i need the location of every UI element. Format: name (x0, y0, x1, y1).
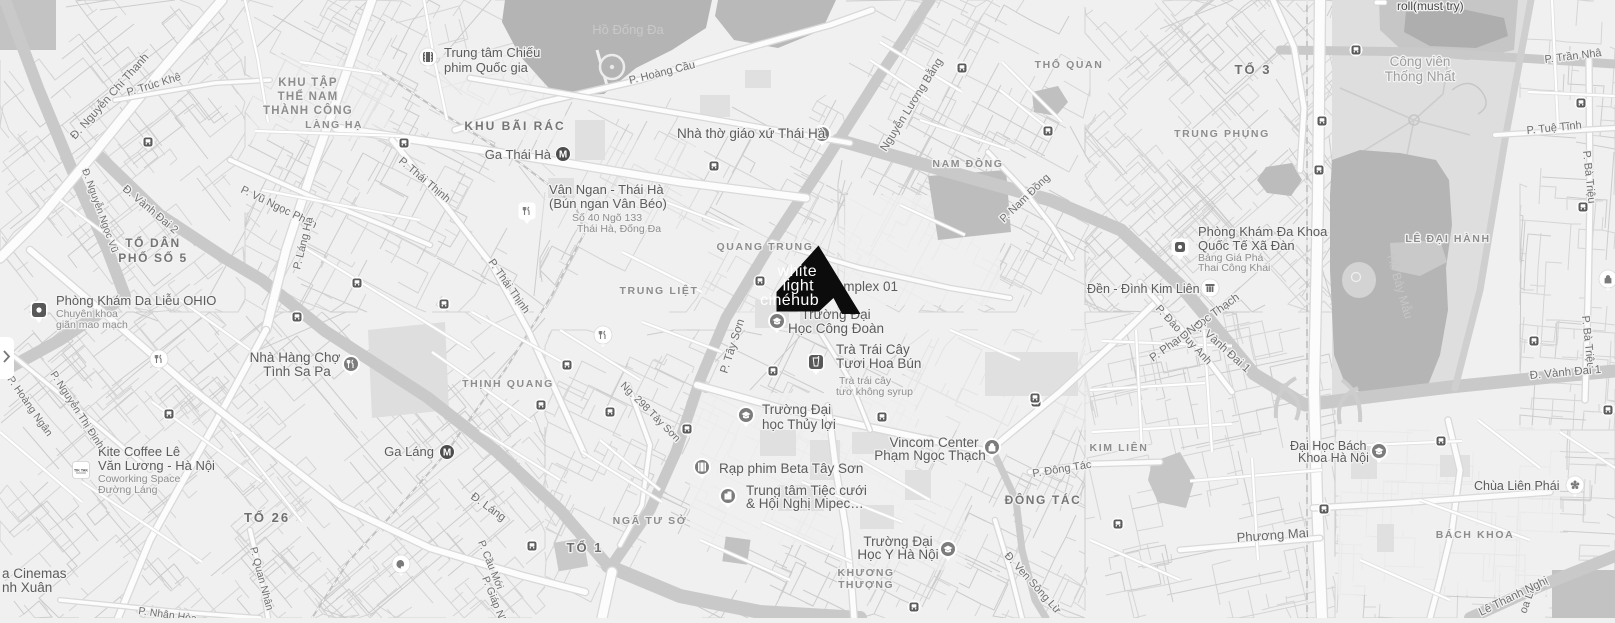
svg-text:LÊ ĐẠI HÀNH: LÊ ĐẠI HÀNH (1405, 232, 1490, 245)
svg-text:NGÃ TƯ SỞ: NGÃ TƯ SỞ (613, 514, 688, 527)
svg-text:roll(must try): roll(must try) (1397, 0, 1464, 13)
svg-text:Phạm Ngọc Thạch: Phạm Ngọc Thạch (874, 448, 986, 463)
svg-text:THÀNH CÔNG: THÀNH CÔNG (263, 104, 353, 117)
svg-text:nh Xuân: nh Xuân (2, 580, 52, 595)
svg-text:Nhà Hàng Chợ: Nhà Hàng Chợ (250, 350, 341, 365)
svg-text:M: M (559, 150, 567, 161)
svg-text:Thống Nhất: Thống Nhất (1385, 69, 1456, 84)
svg-text:Hồ Đống Đa: Hồ Đống Đa (592, 22, 664, 37)
svg-text:KHU TẬP: KHU TẬP (278, 76, 338, 89)
svg-text:Phòng Khám Da Liễu OHIO: Phòng Khám Da Liễu OHIO (56, 293, 216, 308)
svg-text:ĐÔNG TÁC: ĐÔNG TÁC (1005, 492, 1082, 507)
svg-text:TRUNG PHỤNG: TRUNG PHỤNG (1174, 128, 1270, 140)
svg-text:Tình Sa Pa: Tình Sa Pa (263, 364, 331, 379)
svg-text:cinéhub: cinéhub (760, 292, 819, 309)
svg-text:KIM LIÊN: KIM LIÊN (1090, 441, 1149, 454)
svg-text:Công viên: Công viên (1390, 54, 1451, 69)
svg-text:Chùa Liên Phái: Chùa Liên Phái (1474, 479, 1559, 493)
svg-text:QUANG TRUNG: QUANG TRUNG (717, 241, 814, 253)
svg-text:Đường Láng: Đường Láng (98, 484, 158, 496)
svg-text:KHƯƠNG: KHƯƠNG (838, 567, 895, 579)
svg-text:TRUNG LIỆT: TRUNG LIỆT (620, 284, 699, 297)
svg-text:TỔ 3: TỔ 3 (1235, 62, 1272, 77)
svg-text:M: M (443, 448, 451, 459)
svg-text:Ga Thái Hà: Ga Thái Hà (485, 147, 552, 162)
svg-text:LÀNG HẠ: LÀNG HẠ (305, 118, 363, 131)
svg-text:THỊNH QUANG: THỊNH QUANG (462, 378, 554, 390)
svg-text:THỔ QUAN: THỔ QUAN (1035, 58, 1104, 71)
svg-text:TIK TAK: TIK TAK (74, 469, 88, 473)
svg-text:giãn mao mạch: giãn mao mạch (56, 319, 128, 331)
svg-text:Tươi Hoa Bún: Tươi Hoa Bún (836, 356, 921, 371)
svg-text:Học Công Đoàn: Học Công Đoàn (788, 321, 884, 336)
svg-text:THƯỢNG: THƯỢNG (838, 579, 894, 591)
svg-text:Đền - Đình Kim Liên: Đền - Đình Kim Liên (1087, 282, 1200, 296)
svg-text:Trường Đại: Trường Đại (762, 402, 831, 417)
svg-text:tươ không syrup: tươ không syrup (836, 386, 913, 398)
svg-text:Khoa Hà Nội: Khoa Hà Nội (1298, 451, 1369, 465)
svg-text:a Cinemas: a Cinemas (2, 566, 67, 581)
svg-text:(Bún ngan Vân Béo): (Bún ngan Vân Béo) (549, 196, 667, 211)
svg-text:THỂ NAM: THỂ NAM (278, 90, 339, 103)
svg-text:TỔ 1: TỔ 1 (567, 540, 604, 555)
svg-text:Rạp phim Beta Tây Sơn: Rạp phim Beta Tây Sơn (719, 461, 863, 476)
svg-text:Vân Ngan - Thái Hà: Vân Ngan - Thái Hà (549, 182, 664, 197)
svg-text:KHU BÃI RÁC: KHU BÃI RÁC (464, 118, 565, 133)
svg-text:TỔ DÂN: TỔ DÂN (125, 235, 181, 250)
svg-text:phim Quốc gia: phim Quốc gia (444, 60, 529, 75)
svg-text:PHỐ SỐ 5: PHỐ SỐ 5 (118, 250, 187, 265)
svg-text:Thái Hà, Đống Đa: Thái Hà, Đống Đa (577, 223, 661, 235)
svg-text:Kite Coffee Lê: Kite Coffee Lê (98, 444, 180, 459)
svg-text:Văn Lương - Hà Nội: Văn Lương - Hà Nội (98, 458, 215, 473)
svg-text:& Hội Nghị Mipec…: & Hội Nghị Mipec… (746, 496, 864, 511)
svg-text:TỔ 26: TỔ 26 (244, 510, 290, 525)
svg-text:Quốc Tế Xã Đàn: Quốc Tế Xã Đàn (1198, 238, 1295, 253)
svg-text:Nhà thờ giáo xứ Thái Hà: Nhà thờ giáo xứ Thái Hà (677, 126, 826, 141)
svg-text:Trung tâm Chiếu: Trung tâm Chiếu (444, 45, 540, 60)
svg-text:Học Y Hà Nội: Học Y Hà Nội (857, 547, 938, 562)
svg-text:Ga Láng: Ga Láng (384, 444, 434, 459)
svg-text:Phòng Khám Đa Khoa: Phòng Khám Đa Khoa (1198, 224, 1328, 239)
svg-text:NAM ĐỒNG: NAM ĐỒNG (932, 157, 1003, 170)
svg-text:Trà Trái Cây: Trà Trái Cây (836, 342, 910, 357)
svg-text:BÁCH KHOA: BÁCH KHOA (1436, 528, 1515, 541)
svg-text:Thai Công Khai: Thai Công Khai (1198, 262, 1270, 274)
svg-text:học Thủy lợi: học Thủy lợi (762, 417, 836, 432)
